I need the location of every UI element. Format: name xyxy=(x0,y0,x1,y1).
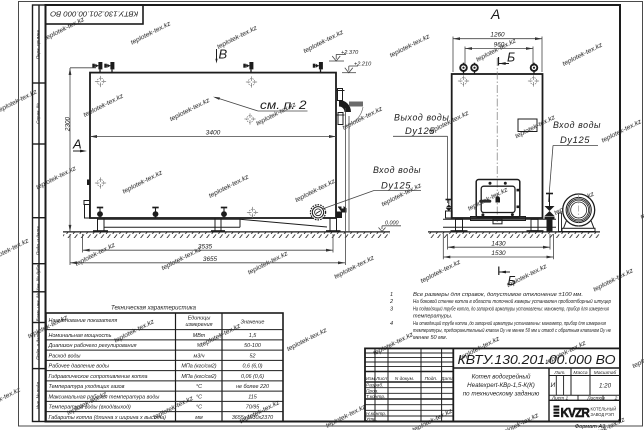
svg-text:Dy125: Dy125 xyxy=(560,134,590,145)
svg-text:Инв. № подл.: Инв. № подл. xyxy=(36,381,41,410)
svg-text:2300: 2300 xyxy=(65,116,72,132)
svg-text:Инв. № дубл.: Инв. № дубл. xyxy=(36,264,41,292)
svg-text:Выход воды: Выход воды xyxy=(394,113,449,123)
svg-text:Диапазон рабочего регулировани: Диапазон рабочего регулирования xyxy=(48,343,137,349)
svg-text:+2.210: +2.210 xyxy=(354,61,372,67)
svg-text:Значение: Значение xyxy=(241,320,265,326)
svg-text:Вход воды: Вход воды xyxy=(553,120,601,130)
svg-text:Наименование показателя: Наименование показателя xyxy=(49,318,118,324)
svg-text:не более 220: не более 220 xyxy=(236,384,269,390)
svg-text:Справ. №: Справ. № xyxy=(36,103,41,124)
svg-text:Лист: Лист xyxy=(375,376,388,382)
svg-text:Утв.: Утв. xyxy=(366,417,377,423)
svg-text:960: 960 xyxy=(494,42,505,49)
svg-text:Перв. примен.: Перв. примен. xyxy=(36,29,41,60)
svg-text:по техническому заданию: по техническому заданию xyxy=(463,391,540,398)
svg-text:В: В xyxy=(219,47,228,62)
svg-text:Лист 1: Лист 1 xyxy=(551,396,569,402)
svg-text:Дата: Дата xyxy=(440,376,454,382)
svg-text:мм: мм xyxy=(195,415,203,421)
svg-text:Все размеры для справок, допус: Все размеры для справок, допустимое откл… xyxy=(413,292,583,298)
svg-text:На боковой стенке котла в обла: На боковой стенке котла в области топочн… xyxy=(413,298,611,305)
svg-text:1260: 1260 xyxy=(490,32,505,39)
svg-text:3400: 3400 xyxy=(206,130,221,137)
svg-text:0,6 (6,0): 0,6 (6,0) xyxy=(242,364,262,370)
svg-text:70/95: 70/95 xyxy=(246,405,260,411)
svg-text:КВТУ.130.201.00.000 ВО: КВТУ.130.201.00.000 ВО xyxy=(458,352,616,367)
svg-text:°С: °С xyxy=(196,394,202,400)
svg-text:1:20: 1:20 xyxy=(599,383,612,390)
svg-text:1430: 1430 xyxy=(491,240,506,247)
svg-text:Гидравлическое сопротивление к: Гидравлическое сопротивление котла xyxy=(49,374,148,380)
svg-text:Единицы: Единицы xyxy=(188,316,211,322)
svg-text:Габариты котла (длинна х ширин: Габариты котла (длинна х ширина х высота… xyxy=(49,415,167,421)
svg-text:Листов: Листов xyxy=(586,396,605,402)
svg-text:Формат А3: Формат А3 xyxy=(575,424,606,430)
svg-text:На отводящий трубе котла ,до з: На отводящий трубе котла ,до запорной ар… xyxy=(413,320,606,327)
svg-text:Рабочее давление воды: Рабочее давление воды xyxy=(49,364,109,370)
svg-text:МВт: МВт xyxy=(193,333,206,339)
svg-text:52: 52 xyxy=(250,353,256,359)
svg-text:КОТЕЛЬНЫЙ: КОТЕЛЬНЫЙ xyxy=(591,407,617,412)
svg-text:Т.контр.: Т.контр. xyxy=(366,394,385,400)
svg-text:KVZR: KVZR xyxy=(561,405,590,420)
svg-text:ЗАВОД РЭП: ЗАВОД РЭП xyxy=(591,412,614,417)
svg-text:менее 50 мм.: менее 50 мм. xyxy=(413,335,447,341)
svg-text:см. п. 2: см. п. 2 xyxy=(260,100,307,112)
svg-text:4: 4 xyxy=(390,321,393,327)
svg-text:температуры.: температуры. xyxy=(413,314,452,320)
svg-text:Максимальная рабочая температу: Максимальная рабочая температура воды xyxy=(49,394,160,400)
svg-text:Heatexpert-КВр-1,5-К(К): Heatexpert-КВр-1,5-К(К) xyxy=(467,382,535,389)
svg-text:МПа (кгс/см2): МПа (кгс/см2) xyxy=(181,374,216,380)
svg-text:Техническая характеристика: Техническая характеристика xyxy=(111,306,197,312)
svg-text:°С: °С xyxy=(196,384,202,390)
svg-text:Вход воды: Вход воды xyxy=(373,165,421,175)
svg-text:Котел водогрейный: Котел водогрейный xyxy=(472,374,531,381)
svg-text:Масштаб: Масштаб xyxy=(594,370,617,376)
svg-text:Разраб.: Разраб. xyxy=(366,383,383,389)
svg-text:2: 2 xyxy=(389,299,393,305)
svg-text:3535: 3535 xyxy=(198,243,213,250)
svg-text:измерения: измерения xyxy=(186,322,213,328)
svg-text:Н.контр.: Н.контр. xyxy=(366,411,386,417)
svg-text:115: 115 xyxy=(248,394,258,400)
svg-text:Подп. и дата: Подп. и дата xyxy=(36,331,41,360)
svg-text:А: А xyxy=(72,137,82,152)
svg-text:1530: 1530 xyxy=(491,250,506,257)
svg-text:Масса: Масса xyxy=(573,370,588,376)
svg-text:Взам. инв. №: Взам. инв. № xyxy=(36,293,41,321)
svg-text:МПа (кгс/см2): МПа (кгс/см2) xyxy=(181,364,216,370)
svg-text:%: % xyxy=(197,343,202,349)
svg-text:КВТУ.130.201.00.000 ВО: КВТУ.130.201.00.000 ВО xyxy=(50,10,138,19)
svg-text:И: И xyxy=(550,382,555,389)
svg-text:Лит.: Лит. xyxy=(553,370,565,376)
svg-text:1,5: 1,5 xyxy=(249,333,257,339)
svg-text:Температура уходящих газов: Температура уходящих газов xyxy=(49,384,125,390)
svg-text:3655х1530х2370: 3655х1530х2370 xyxy=(232,415,273,421)
svg-text:Расход воды: Расход воды xyxy=(49,353,81,359)
svg-text:Б: Б xyxy=(507,51,515,65)
svg-text:Пров.: Пров. xyxy=(366,388,379,394)
svg-text:м3/ч: м3/ч xyxy=(194,353,205,359)
svg-text:Изм: Изм xyxy=(366,376,376,382)
svg-text:50-100: 50-100 xyxy=(244,343,261,349)
svg-text:Подп.: Подп. xyxy=(425,376,438,382)
svg-text:Dy125: Dy125 xyxy=(405,125,435,136)
svg-text:°С: °С xyxy=(196,405,202,411)
svg-text:2: 2 xyxy=(614,396,618,402)
svg-text:А: А xyxy=(490,6,500,22)
svg-text:Подп. и дата: Подп. и дата xyxy=(36,226,41,255)
svg-text:0,06 (0,6): 0,06 (0,6) xyxy=(241,374,264,380)
svg-text:Температура воды (вход/выход): Температура воды (вход/выход) xyxy=(49,405,132,411)
svg-text:Номинальная мощность: Номинальная мощность xyxy=(49,333,112,339)
svg-text:N докум.: N докум. xyxy=(395,376,414,382)
svg-text:3655: 3655 xyxy=(203,256,218,263)
svg-text:На подводящий трубе котла, д: На подводящий трубе котла, до запорной а… xyxy=(413,305,609,312)
svg-text:1: 1 xyxy=(390,292,393,298)
svg-text:Dy125: Dy125 xyxy=(381,180,411,191)
svg-text:температуры, предохранительный: температуры, предохранительный клапан Dy… xyxy=(413,327,611,334)
svg-text:Б: Б xyxy=(508,274,516,288)
svg-text:+2.370: +2.370 xyxy=(341,50,359,56)
